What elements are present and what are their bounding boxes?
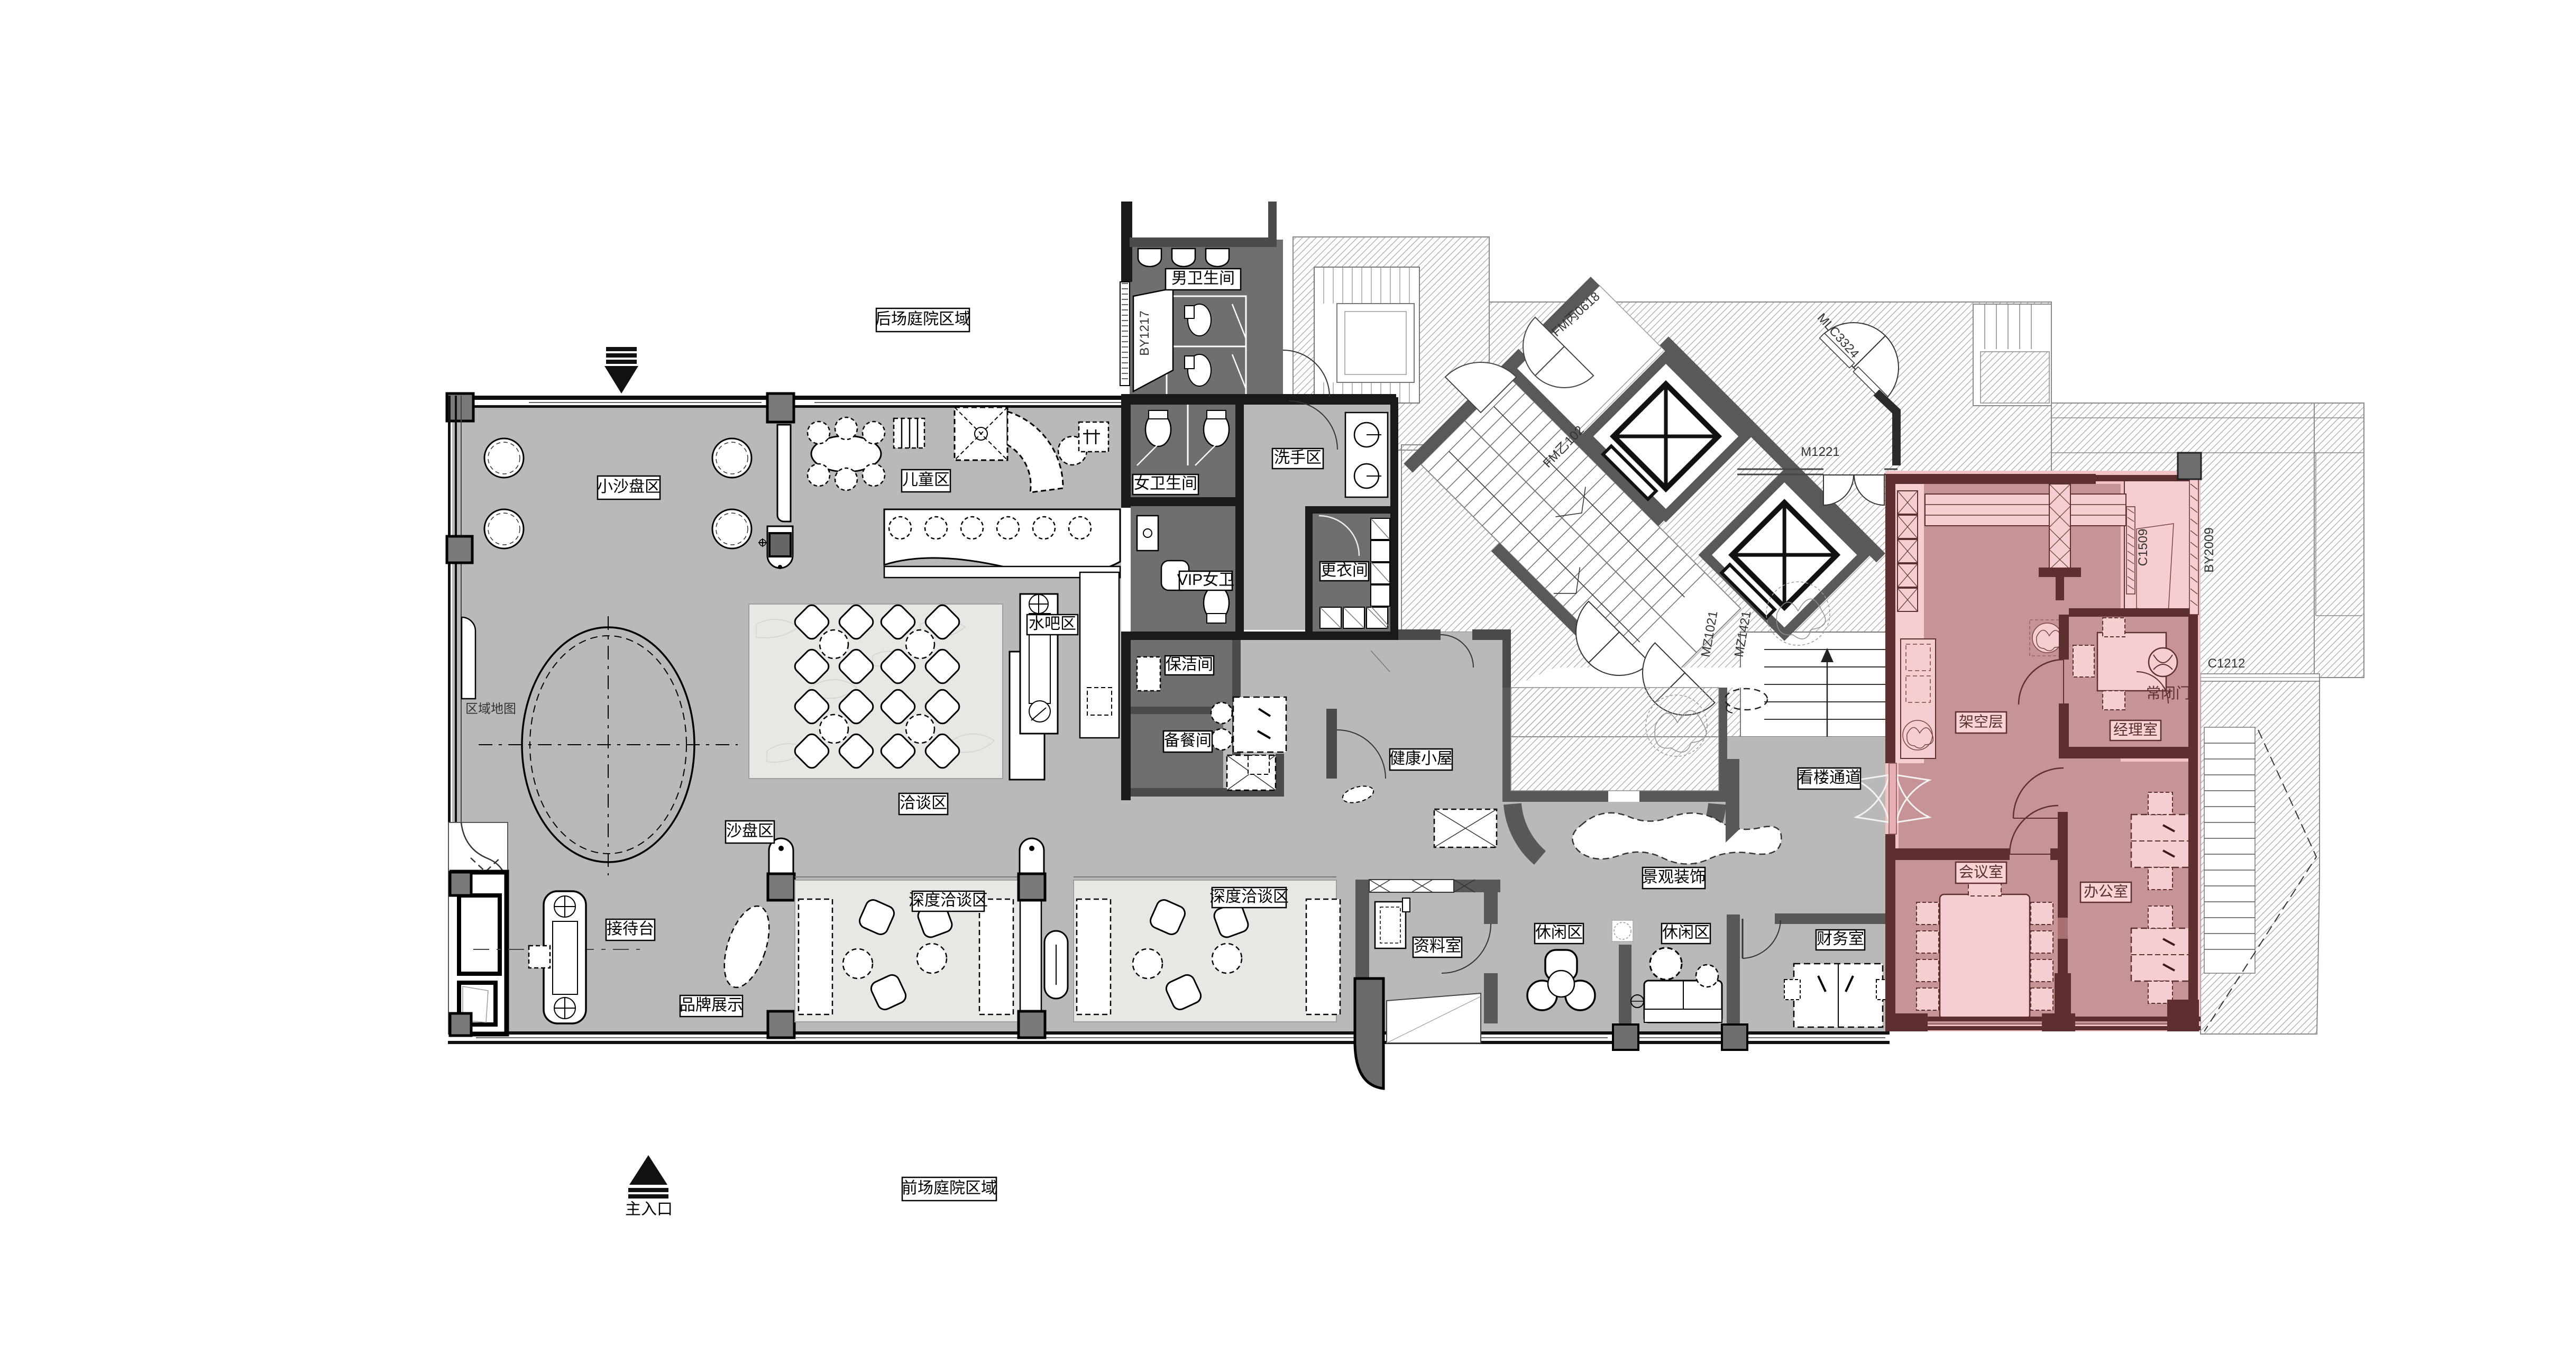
- svg-text:景观装饰: 景观装饰: [1642, 868, 1706, 886]
- svg-text:品牌展示: 品牌展示: [680, 996, 743, 1014]
- svg-text:小沙盘区: 小沙盘区: [597, 478, 661, 496]
- svg-text:资料室: 资料室: [1414, 938, 1461, 955]
- svg-text:架空层: 架空层: [1959, 713, 2003, 730]
- svg-text:女卫生间: 女卫生间: [1134, 475, 1197, 492]
- svg-text:男卫生间: 男卫生间: [1171, 270, 1235, 287]
- svg-text:前场庭院区域: 前场庭院区域: [902, 1179, 997, 1197]
- svg-text:更衣间: 更衣间: [1321, 562, 1368, 579]
- svg-text:儿童区: 儿童区: [902, 471, 950, 489]
- svg-text:后场庭院区域: 后场庭院区域: [875, 310, 970, 328]
- svg-text:休闲区: 休闲区: [1662, 924, 1710, 941]
- svg-text:经理室: 经理室: [2113, 721, 2158, 738]
- svg-text:C1509: C1509: [2136, 529, 2150, 566]
- svg-text:洗手区: 洗手区: [1274, 449, 1322, 466]
- svg-text:健康小屋: 健康小屋: [1389, 750, 1453, 767]
- svg-text:休闲区: 休闲区: [1535, 924, 1583, 941]
- svg-text:看楼通道: 看楼通道: [1798, 769, 1861, 786]
- svg-text:区域地图: 区域地图: [465, 702, 516, 716]
- svg-text:会议室: 会议室: [1959, 864, 2003, 880]
- svg-text:C1212: C1212: [2208, 656, 2245, 671]
- svg-text:办公室: 办公室: [2084, 883, 2128, 900]
- svg-text:备餐间: 备餐间: [1164, 732, 1212, 749]
- svg-text:洽谈区: 洽谈区: [900, 794, 947, 812]
- svg-text:财务室: 财务室: [1817, 930, 1864, 948]
- svg-text:水吧区: 水吧区: [1029, 615, 1076, 633]
- svg-text:常闭门: 常闭门: [2146, 685, 2190, 701]
- svg-text:BY1217: BY1217: [1138, 310, 1152, 355]
- svg-text:接待台: 接待台: [607, 920, 654, 938]
- svg-text:BY2009: BY2009: [2202, 527, 2216, 572]
- svg-text:主入口: 主入口: [625, 1201, 673, 1218]
- svg-text:VIP女卫: VIP女卫: [1177, 571, 1234, 589]
- svg-text:沙盘区: 沙盘区: [726, 822, 774, 840]
- svg-text:保洁间: 保洁间: [1166, 656, 1213, 673]
- svg-text:深度洽谈区: 深度洽谈区: [1209, 888, 1289, 905]
- svg-text:M1221: M1221: [1801, 445, 1839, 459]
- svg-text:深度洽谈区: 深度洽谈区: [909, 892, 988, 909]
